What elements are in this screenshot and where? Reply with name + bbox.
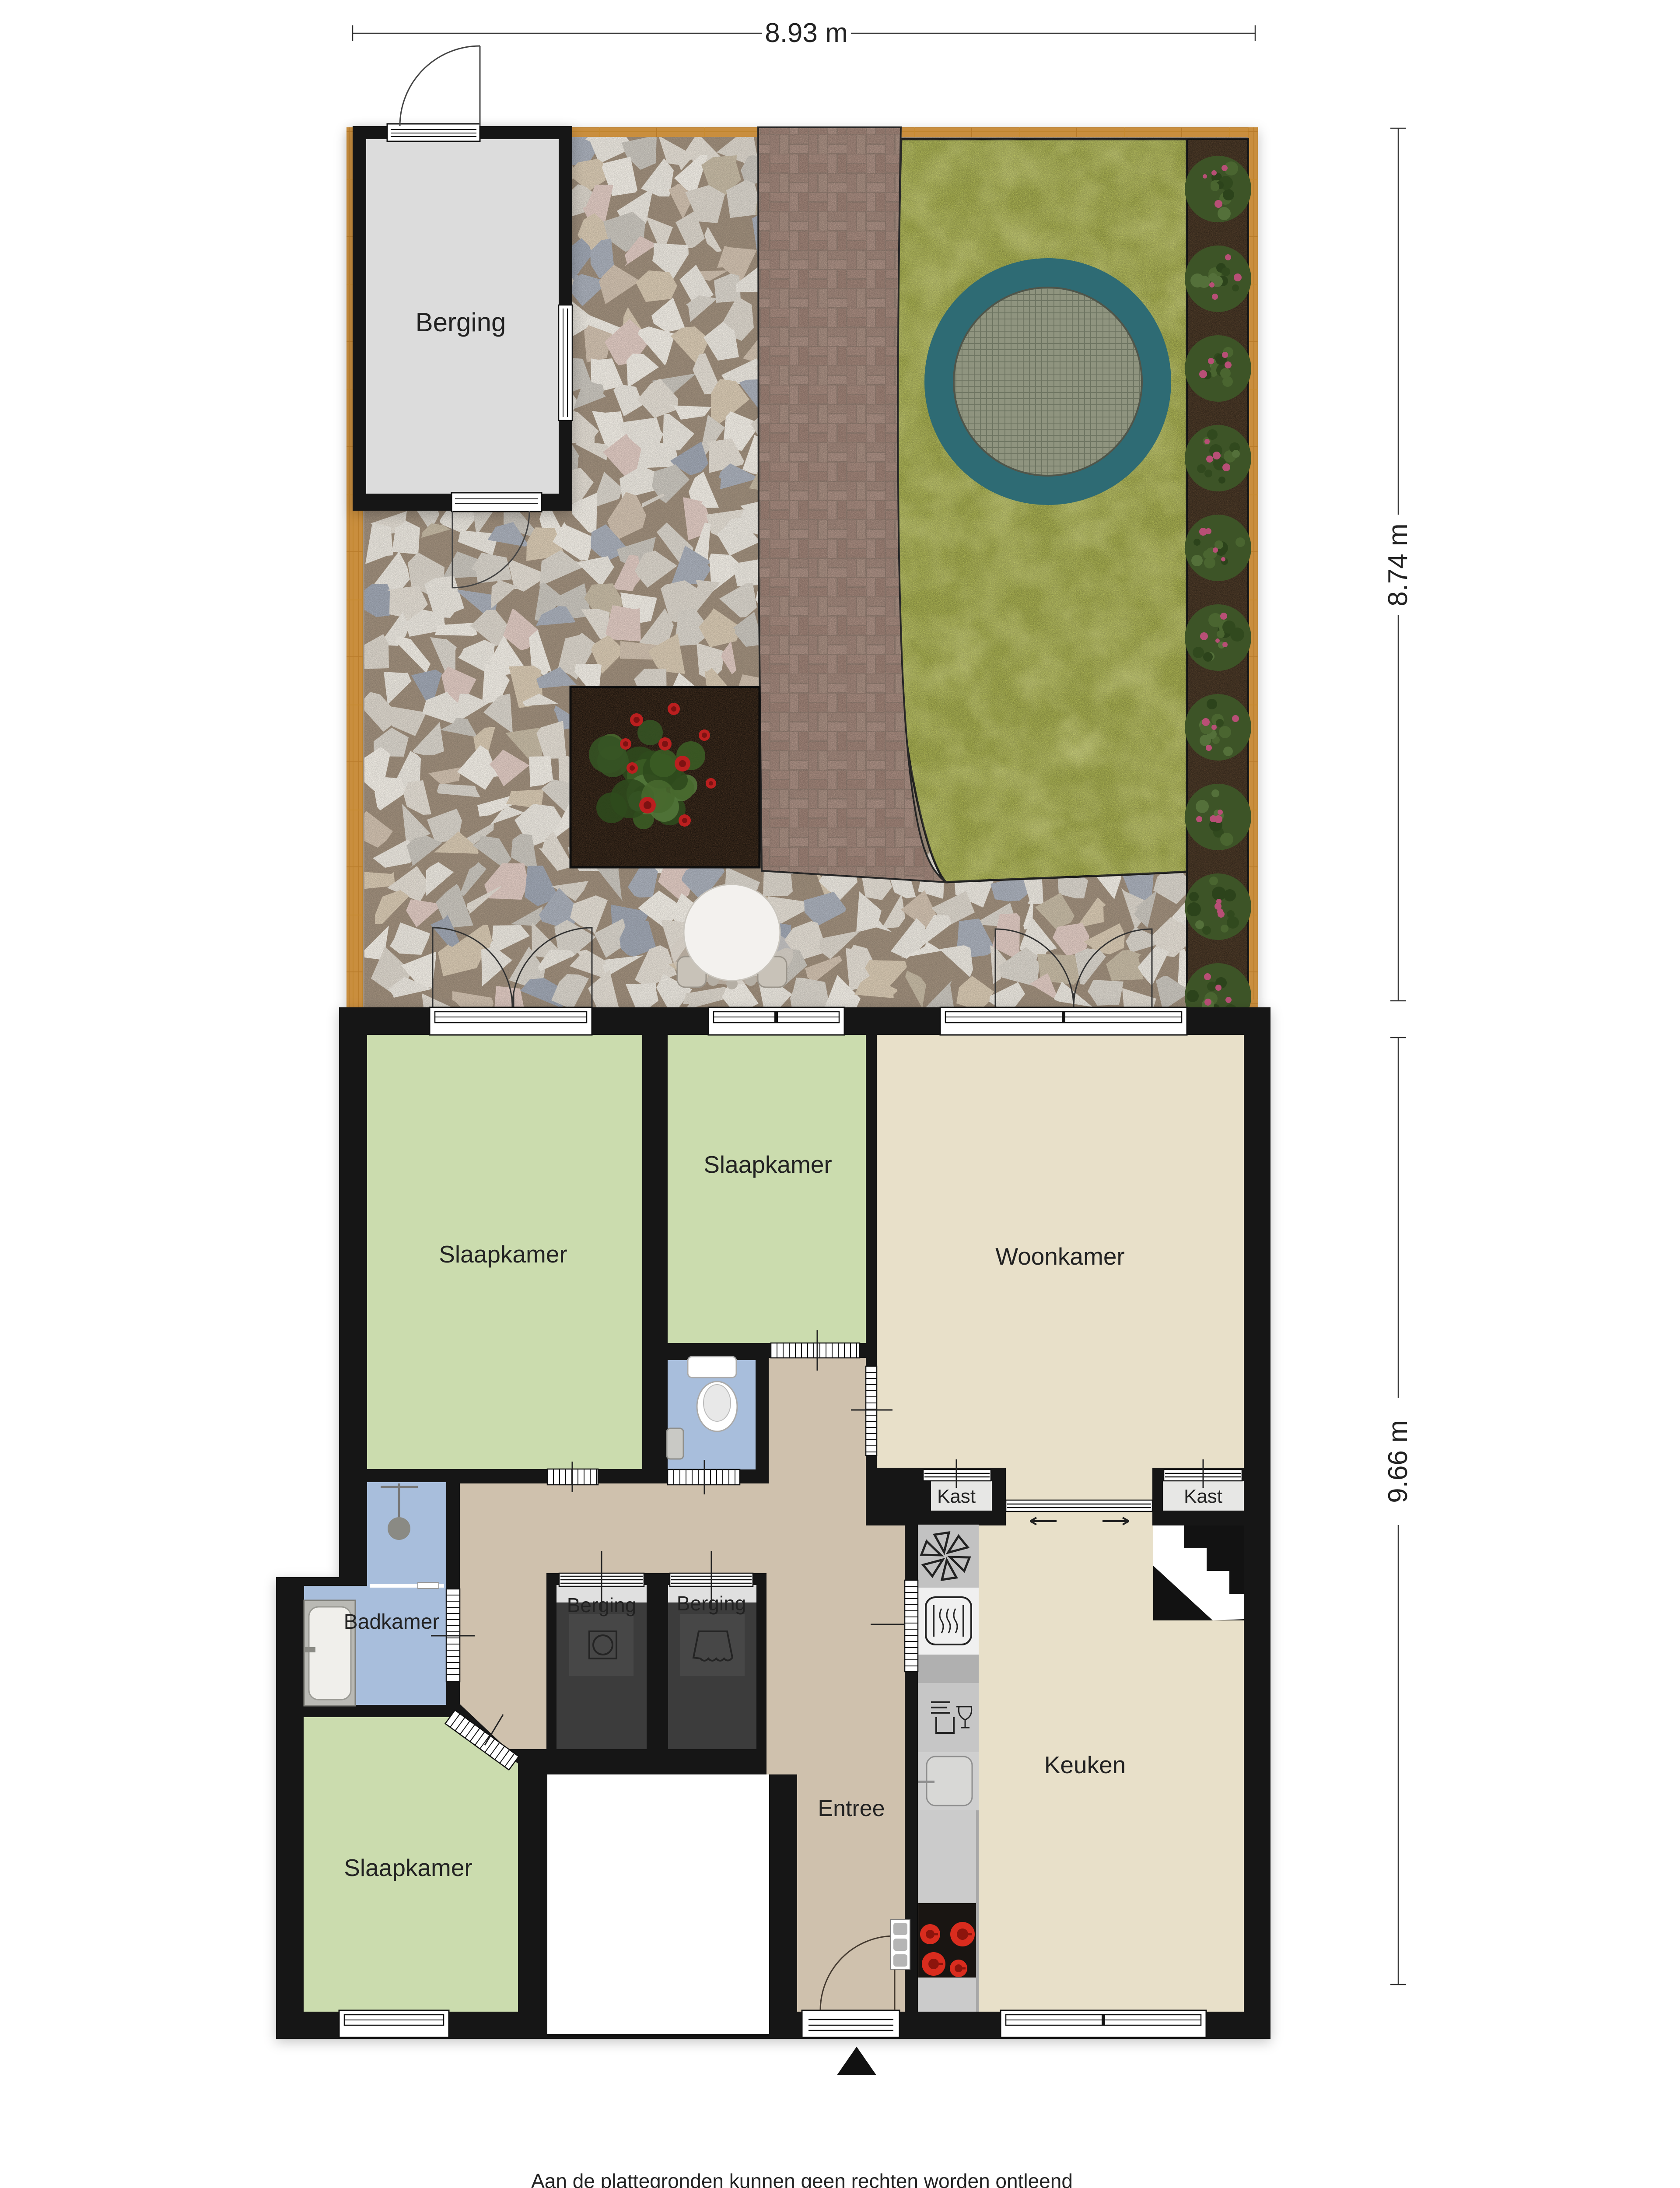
svg-text:Berging: Berging	[567, 1594, 637, 1616]
svg-text:Kast: Kast	[1184, 1486, 1222, 1507]
svg-text:Kast: Kast	[937, 1486, 976, 1507]
svg-text:8.93 m: 8.93 m	[765, 18, 848, 48]
svg-text:Entree: Entree	[818, 1796, 885, 1821]
svg-text:9.66 m: 9.66 m	[1383, 1420, 1413, 1503]
svg-text:Slaapkamer: Slaapkamer	[344, 1854, 472, 1881]
svg-text:Berging: Berging	[677, 1592, 746, 1615]
svg-text:Slaapkamer: Slaapkamer	[439, 1241, 567, 1268]
svg-text:Badkamer: Badkamer	[344, 1610, 440, 1634]
svg-text:8.74 m: 8.74 m	[1383, 523, 1413, 607]
svg-text:Berging: Berging	[416, 308, 506, 337]
svg-text:Woonkamer: Woonkamer	[995, 1243, 1125, 1270]
svg-text:Keuken: Keuken	[1044, 1751, 1126, 1778]
svg-text:Aan de plattegronden kunnen ge: Aan de plattegronden kunnen geen rechten…	[531, 2170, 1073, 2188]
svg-text:Slaapkamer: Slaapkamer	[703, 1151, 832, 1178]
